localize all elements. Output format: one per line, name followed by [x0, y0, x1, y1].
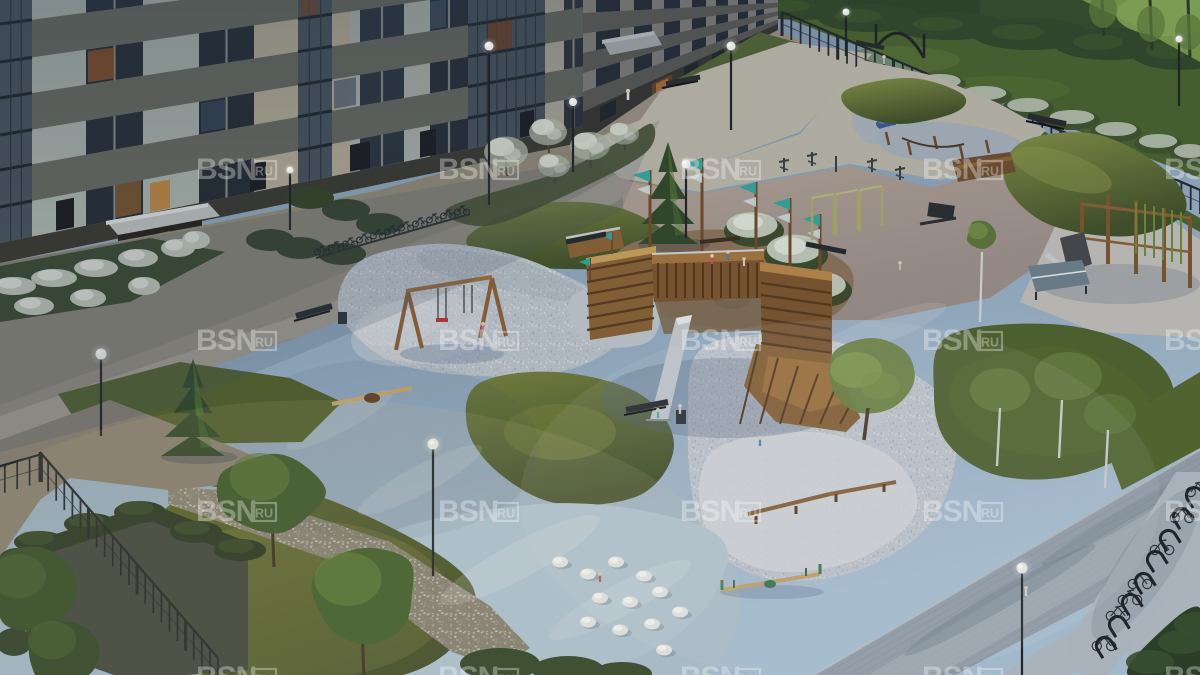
svg-text:RU: RU — [739, 336, 757, 350]
svg-text:BSN: BSN — [196, 153, 256, 186]
svg-text:BSN: BSN — [922, 324, 982, 357]
svg-text:BSN: BSN — [438, 153, 498, 186]
svg-text:BSN: BSN — [196, 324, 256, 357]
svg-text:BSN: BSN — [1164, 495, 1200, 528]
svg-text:RU: RU — [739, 507, 757, 521]
svg-text:BSN: BSN — [196, 661, 256, 675]
svg-text:RU: RU — [255, 165, 273, 179]
svg-text:BSN: BSN — [680, 495, 740, 528]
svg-text:BSN: BSN — [438, 495, 498, 528]
svg-text:BSN: BSN — [1164, 661, 1200, 675]
svg-text:BSN: BSN — [196, 495, 256, 528]
svg-text:RU: RU — [981, 507, 999, 521]
svg-text:BSN: BSN — [680, 153, 740, 186]
svg-text:RU: RU — [255, 336, 273, 350]
svg-text:RU: RU — [739, 165, 757, 179]
svg-text:BSN: BSN — [438, 661, 498, 675]
svg-text:BSN: BSN — [922, 661, 982, 675]
svg-text:BSN: BSN — [680, 324, 740, 357]
svg-text:BSN: BSN — [438, 324, 498, 357]
svg-text:BSN: BSN — [1164, 153, 1200, 186]
svg-text:RU: RU — [497, 336, 515, 350]
svg-text:BSN: BSN — [680, 661, 740, 675]
svg-text:RU: RU — [497, 165, 515, 179]
svg-text:BSN: BSN — [922, 495, 982, 528]
svg-text:RU: RU — [497, 507, 515, 521]
svg-text:RU: RU — [981, 165, 999, 179]
svg-text:BSN: BSN — [922, 153, 982, 186]
svg-text:RU: RU — [981, 336, 999, 350]
svg-text:BSN: BSN — [1164, 324, 1200, 357]
svg-text:RU: RU — [255, 507, 273, 521]
